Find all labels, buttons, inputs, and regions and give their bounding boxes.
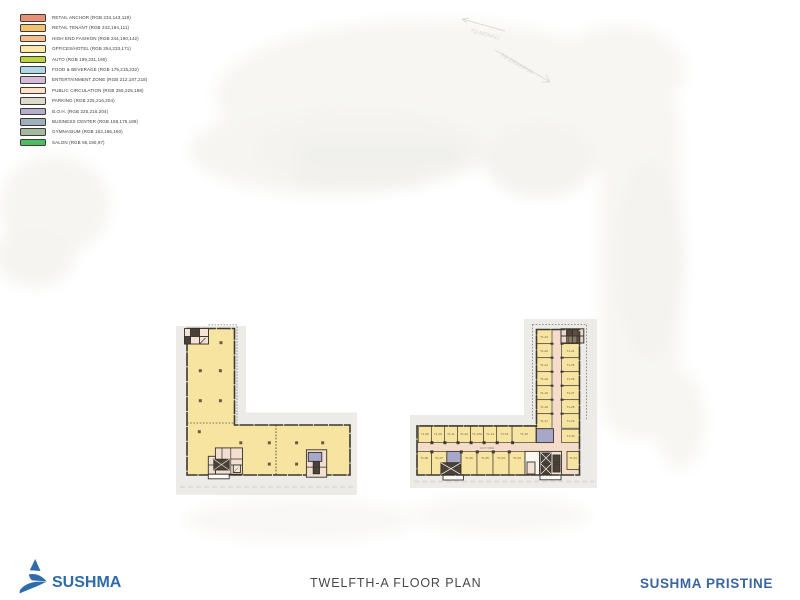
svg-text:T1-19: T1-19 <box>540 391 548 395</box>
svg-text:T1-11: T1-11 <box>447 432 455 436</box>
svg-text:T1-14: T1-14 <box>486 432 494 436</box>
svg-text:T1-03: T1-03 <box>513 456 521 460</box>
svg-text:T1-23: T1-23 <box>540 335 548 339</box>
svg-text:T1-10: T1-10 <box>434 432 442 436</box>
svg-text:T1-20: T1-20 <box>540 377 548 381</box>
svg-text:16 FT WIDE: 16 FT WIDE <box>480 446 494 450</box>
svg-text:T1-22: T1-22 <box>540 349 548 353</box>
svg-text:T1-28: T1-28 <box>567 405 575 409</box>
svg-text:T1-16: T1-16 <box>520 432 528 436</box>
svg-text:T1-04: T1-04 <box>497 456 505 460</box>
svg-text:T1-01: T1-01 <box>569 456 577 460</box>
svg-text:T1-08: T1-08 <box>420 456 428 460</box>
svg-text:T1-12A: T1-12A <box>472 432 482 436</box>
svg-text:T1-05: T1-05 <box>481 456 489 460</box>
svg-text:T1-27: T1-27 <box>567 391 575 395</box>
svg-text:T1-15: T1-15 <box>500 432 508 436</box>
svg-text:T1-06: T1-06 <box>465 456 473 460</box>
svg-text:T1-25: T1-25 <box>567 363 575 367</box>
svg-text:T1-12: T1-12 <box>460 432 468 436</box>
svg-text:T1-07: T1-07 <box>435 456 443 460</box>
svg-text:T1-26: T1-26 <box>567 377 575 381</box>
svg-text:T1-24: T1-24 <box>567 349 575 353</box>
svg-text:T1-09: T1-09 <box>421 432 429 436</box>
svg-text:T1-21: T1-21 <box>540 363 548 367</box>
svg-text:T1-17: T1-17 <box>540 419 548 423</box>
svg-text:T1-18: T1-18 <box>540 405 548 409</box>
svg-text:T1-29: T1-29 <box>567 419 575 423</box>
svg-text:T1-30: T1-30 <box>567 434 575 438</box>
